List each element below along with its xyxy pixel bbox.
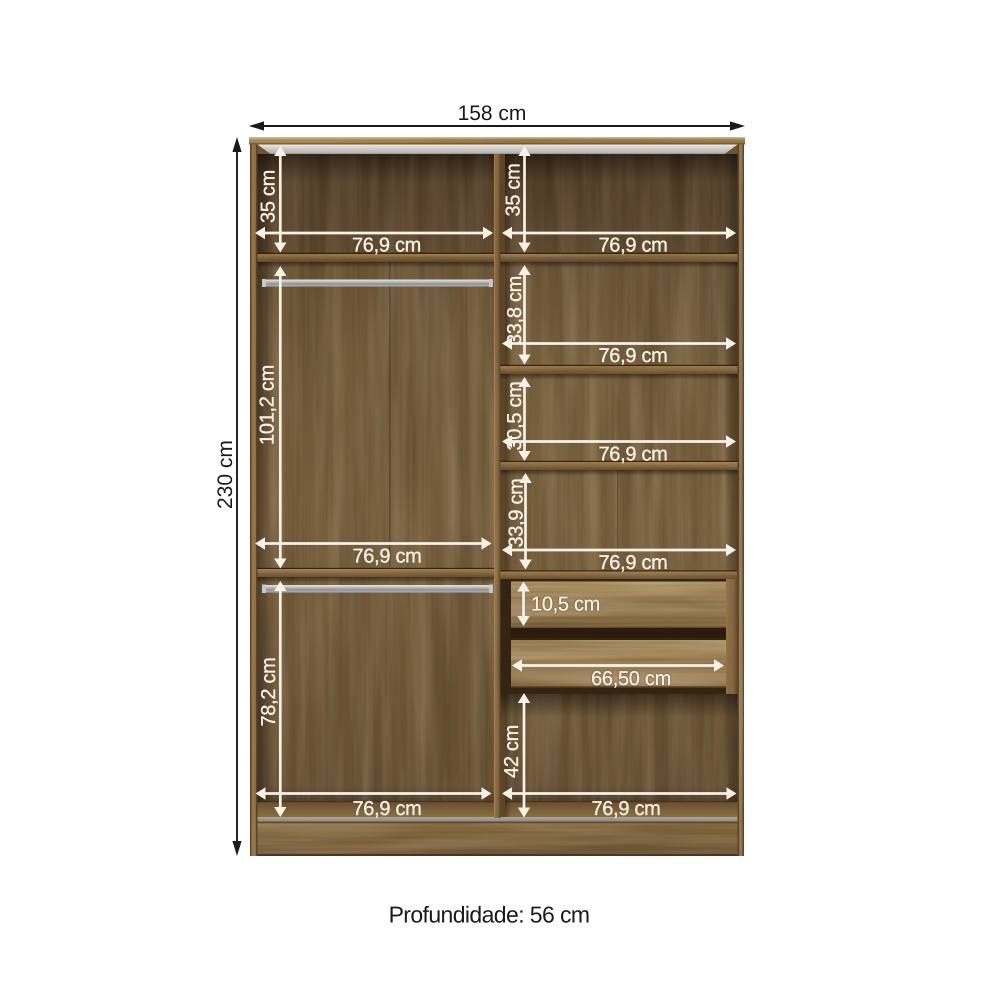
svg-text:76,9 cm: 76,9 cm [591,798,660,820]
svg-text:35 cm: 35 cm [258,170,280,223]
svg-text:76,9 cm: 76,9 cm [352,235,421,257]
svg-text:66,50 cm: 66,50 cm [591,668,671,690]
svg-text:42 cm: 42 cm [501,725,523,778]
svg-text:33,9 cm: 33,9 cm [506,478,528,547]
svg-text:76,9 cm: 76,9 cm [598,444,667,466]
svg-text:158 cm: 158 cm [458,102,527,125]
svg-text:Profundidade: 56 cm: Profundidade: 56 cm [389,902,590,928]
svg-text:10,5 cm: 10,5 cm [531,594,600,616]
svg-text:35 cm: 35 cm [503,164,525,217]
svg-text:76,9 cm: 76,9 cm [598,345,667,367]
svg-text:101,2 cm: 101,2 cm [257,365,279,445]
svg-text:76,9 cm: 76,9 cm [352,798,421,820]
svg-text:76,9 cm: 76,9 cm [598,235,667,257]
svg-text:33,8 cm: 33,8 cm [504,276,526,345]
svg-text:230 cm: 230 cm [214,440,237,509]
svg-text:78,2 cm: 78,2 cm [258,657,280,726]
svg-text:76,9 cm: 76,9 cm [598,552,667,574]
svg-text:76,9 cm: 76,9 cm [352,546,421,568]
